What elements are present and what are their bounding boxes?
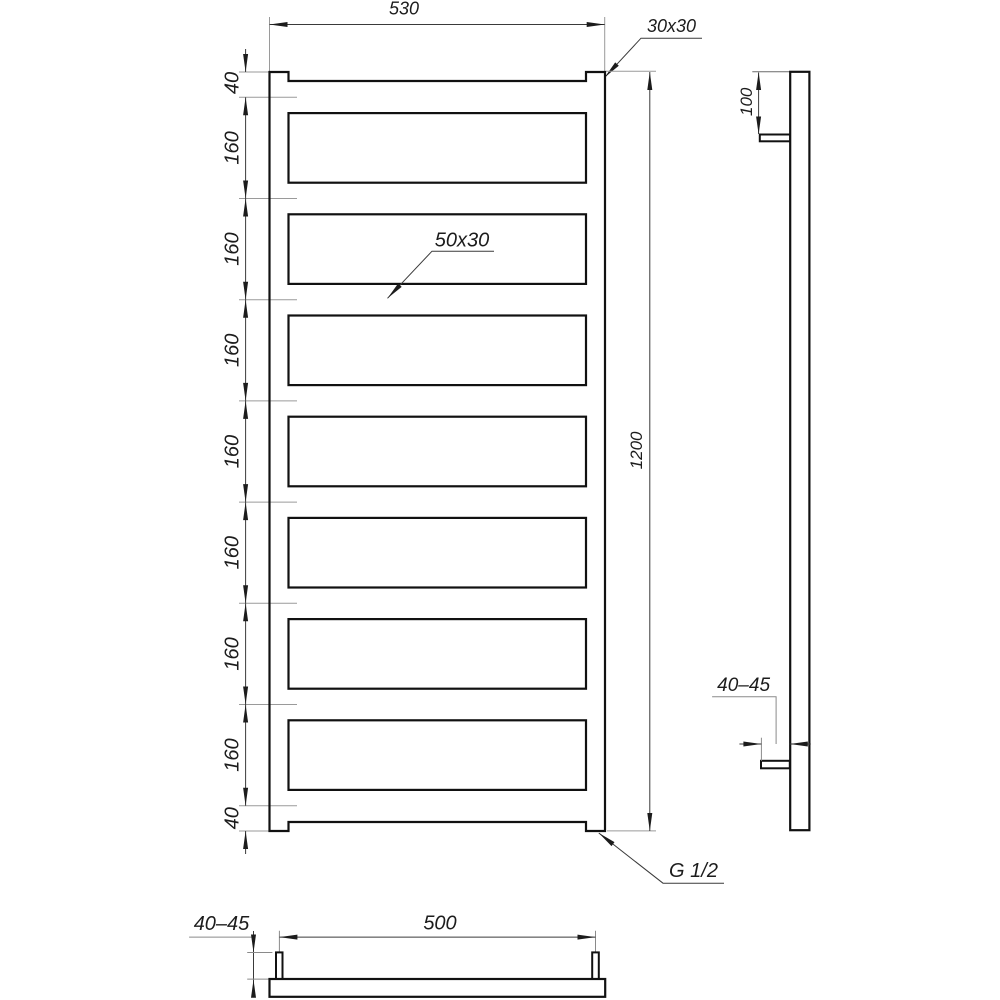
svg-text:160: 160 — [222, 435, 244, 468]
svg-text:160: 160 — [222, 131, 244, 164]
svg-text:40: 40 — [222, 72, 244, 94]
svg-text:160: 160 — [222, 334, 244, 367]
svg-text:G 1/2: G 1/2 — [669, 860, 718, 882]
svg-text:160: 160 — [222, 536, 244, 569]
svg-text:40–45: 40–45 — [194, 913, 250, 935]
svg-text:160: 160 — [222, 232, 244, 265]
svg-text:30x30: 30x30 — [647, 16, 696, 36]
svg-text:160: 160 — [222, 738, 244, 771]
svg-text:500: 500 — [423, 913, 456, 935]
svg-text:1200: 1200 — [627, 431, 646, 469]
svg-text:40: 40 — [222, 807, 244, 829]
svg-text:100: 100 — [737, 87, 756, 116]
svg-text:50x30: 50x30 — [435, 230, 490, 252]
svg-text:530: 530 — [389, 0, 419, 19]
svg-text:40–45: 40–45 — [717, 675, 770, 696]
svg-text:160: 160 — [222, 637, 244, 670]
